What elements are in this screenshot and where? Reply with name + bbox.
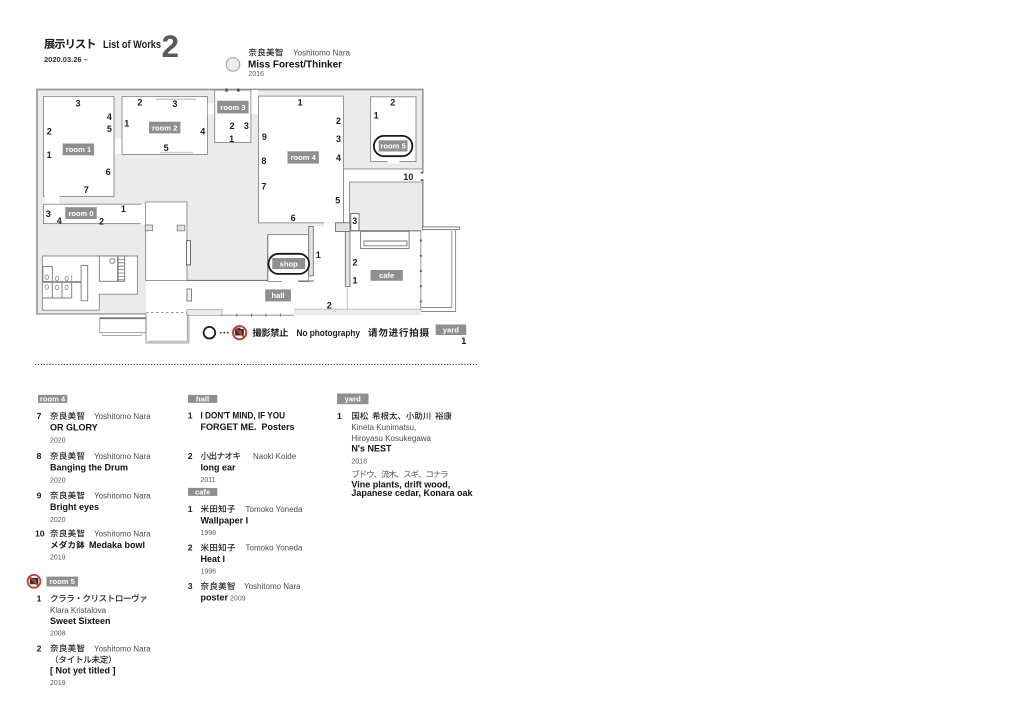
svg-text:room 1: room 1 xyxy=(66,145,92,154)
svg-text:Medaka bowl: Medaka bowl xyxy=(89,540,145,550)
svg-text:Klara Kristalova: Klara Kristalova xyxy=(50,606,107,615)
svg-text:3: 3 xyxy=(188,581,193,591)
svg-text:Yoshitomo Nara: Yoshitomo Nara xyxy=(94,452,151,461)
svg-text:Miss Forest/Thinker: Miss Forest/Thinker xyxy=(248,58,342,70)
svg-text:Yoshitomo Nara: Yoshitomo Nara xyxy=(94,530,151,539)
svg-text:2008: 2008 xyxy=(50,631,66,638)
svg-text:1: 1 xyxy=(121,204,126,214)
svg-text:8: 8 xyxy=(37,451,42,461)
svg-text:Wallpaper I: Wallpaper I xyxy=(201,515,249,525)
svg-text:Sweet Sixteen: Sweet Sixteen xyxy=(50,616,111,626)
svg-text:List of Works: List of Works xyxy=(103,39,161,51)
svg-text:room 5: room 5 xyxy=(50,577,76,586)
svg-text:2: 2 xyxy=(37,643,42,653)
svg-text:5: 5 xyxy=(335,196,340,206)
svg-text:8: 8 xyxy=(261,156,266,166)
svg-text:6: 6 xyxy=(106,167,111,177)
svg-text:9: 9 xyxy=(37,491,42,501)
svg-text:2020: 2020 xyxy=(50,478,66,485)
svg-text:2019: 2019 xyxy=(50,680,66,687)
svg-text:OR GLORY: OR GLORY xyxy=(50,422,98,432)
svg-text:4: 4 xyxy=(57,216,62,226)
svg-text:2009: 2009 xyxy=(230,596,246,603)
svg-text:room 4: room 4 xyxy=(291,153,317,162)
svg-text:5: 5 xyxy=(164,143,169,153)
svg-text:Yoshitomo Nara: Yoshitomo Nara xyxy=(293,49,351,58)
svg-text:room 0: room 0 xyxy=(68,209,93,218)
svg-text:hall: hall xyxy=(196,394,209,403)
svg-text:3: 3 xyxy=(75,98,80,108)
svg-text:1: 1 xyxy=(188,411,193,421)
svg-text:2: 2 xyxy=(137,98,142,108)
svg-text:Yoshitomo Nara: Yoshitomo Nara xyxy=(94,644,151,653)
svg-text:2019: 2019 xyxy=(50,554,66,561)
svg-text:1: 1 xyxy=(337,411,342,421)
svg-text:Yoshitomo Nara: Yoshitomo Nara xyxy=(244,582,301,591)
svg-text:2: 2 xyxy=(188,543,193,553)
svg-text:3: 3 xyxy=(336,134,341,144)
svg-text:10: 10 xyxy=(403,172,413,182)
svg-text:3: 3 xyxy=(352,216,357,226)
svg-text:2: 2 xyxy=(352,258,357,268)
svg-text:3: 3 xyxy=(46,209,51,219)
svg-text:Banging the Drum: Banging the Drum xyxy=(50,462,128,472)
svg-text:2018: 2018 xyxy=(351,459,367,466)
svg-text:shop: shop xyxy=(280,259,299,268)
svg-text:1: 1 xyxy=(316,250,321,260)
svg-text:1: 1 xyxy=(124,118,129,128)
svg-text:4: 4 xyxy=(336,153,341,163)
svg-text:4: 4 xyxy=(107,112,112,122)
svg-text:3: 3 xyxy=(244,121,249,131)
svg-text:Hiroyasu Kosukegawa: Hiroyasu Kosukegawa xyxy=(351,434,431,443)
svg-text:cafe: cafe xyxy=(195,487,210,496)
svg-text:7: 7 xyxy=(84,185,89,195)
svg-text:1: 1 xyxy=(229,134,234,144)
svg-text:7: 7 xyxy=(261,181,266,191)
svg-text:Kineta Kunimatsu,: Kineta Kunimatsu, xyxy=(351,423,416,432)
svg-text:1: 1 xyxy=(298,98,303,108)
svg-text:1: 1 xyxy=(47,150,52,160)
svg-text:No photography: No photography xyxy=(297,327,361,338)
svg-text:room 5: room 5 xyxy=(380,142,406,151)
svg-text:Japanese cedar, Konara oak: Japanese cedar, Konara oak xyxy=(351,488,473,498)
svg-text:room 2: room 2 xyxy=(152,123,177,132)
svg-text:2020.03.26 –: 2020.03.26 – xyxy=(44,55,88,64)
svg-text:Tomoko Yoneda: Tomoko Yoneda xyxy=(246,505,303,514)
svg-text:2: 2 xyxy=(162,28,180,64)
svg-text:1: 1 xyxy=(352,275,357,285)
svg-text:room 4: room 4 xyxy=(40,394,66,403)
svg-text:Tomoko Yoneda: Tomoko Yoneda xyxy=(246,544,303,553)
svg-text:2: 2 xyxy=(336,116,341,126)
svg-text:1998: 1998 xyxy=(201,530,217,537)
svg-text:FORGET ME. Posters: FORGET ME. Posters xyxy=(201,422,295,432)
svg-text:2: 2 xyxy=(327,301,332,311)
svg-text:2011: 2011 xyxy=(201,477,216,484)
svg-text:7: 7 xyxy=(37,411,42,421)
svg-text:2020: 2020 xyxy=(50,517,66,524)
svg-text:1: 1 xyxy=(37,594,42,604)
svg-text:Bright eyes: Bright eyes xyxy=(50,502,99,512)
svg-text:1: 1 xyxy=(461,336,466,346)
svg-text:2: 2 xyxy=(47,127,52,137)
svg-text:I DON'T MIND, IF YOU: I DON'T MIND, IF YOU xyxy=(201,411,286,421)
svg-text:hall: hall xyxy=(271,291,284,300)
svg-text:2020: 2020 xyxy=(50,438,66,445)
svg-text:N's NEST: N's NEST xyxy=(351,444,392,454)
svg-text:room 3: room 3 xyxy=(220,103,245,112)
svg-text:yard: yard xyxy=(443,326,459,335)
svg-text:Yoshitomo Nara: Yoshitomo Nara xyxy=(94,492,151,501)
svg-text:9: 9 xyxy=(262,132,267,142)
svg-text:poster: poster xyxy=(201,593,229,603)
svg-text:2016: 2016 xyxy=(248,71,264,78)
svg-text:Naoki Koide: Naoki Koide xyxy=(253,452,297,461)
svg-text:1: 1 xyxy=(374,111,379,121)
svg-text:[ Not yet titled ]: [ Not yet titled ] xyxy=(50,666,116,676)
svg-text:long ear: long ear xyxy=(201,462,237,472)
svg-text:10: 10 xyxy=(35,529,45,539)
svg-text:6: 6 xyxy=(291,213,296,223)
svg-text:2: 2 xyxy=(390,98,395,108)
svg-text:5: 5 xyxy=(107,124,112,134)
svg-text:Heat I: Heat I xyxy=(201,554,226,564)
svg-text:2: 2 xyxy=(188,451,193,461)
svg-text:cafe: cafe xyxy=(379,271,394,280)
svg-text:4: 4 xyxy=(200,127,205,137)
svg-text:1: 1 xyxy=(188,504,193,514)
svg-text:2: 2 xyxy=(229,121,234,131)
svg-text:3: 3 xyxy=(172,99,177,109)
svg-text:2: 2 xyxy=(99,217,104,227)
svg-text:yard: yard xyxy=(345,395,361,404)
svg-text:Yoshitomo Nara: Yoshitomo Nara xyxy=(94,412,151,421)
svg-text:1996: 1996 xyxy=(201,569,217,576)
